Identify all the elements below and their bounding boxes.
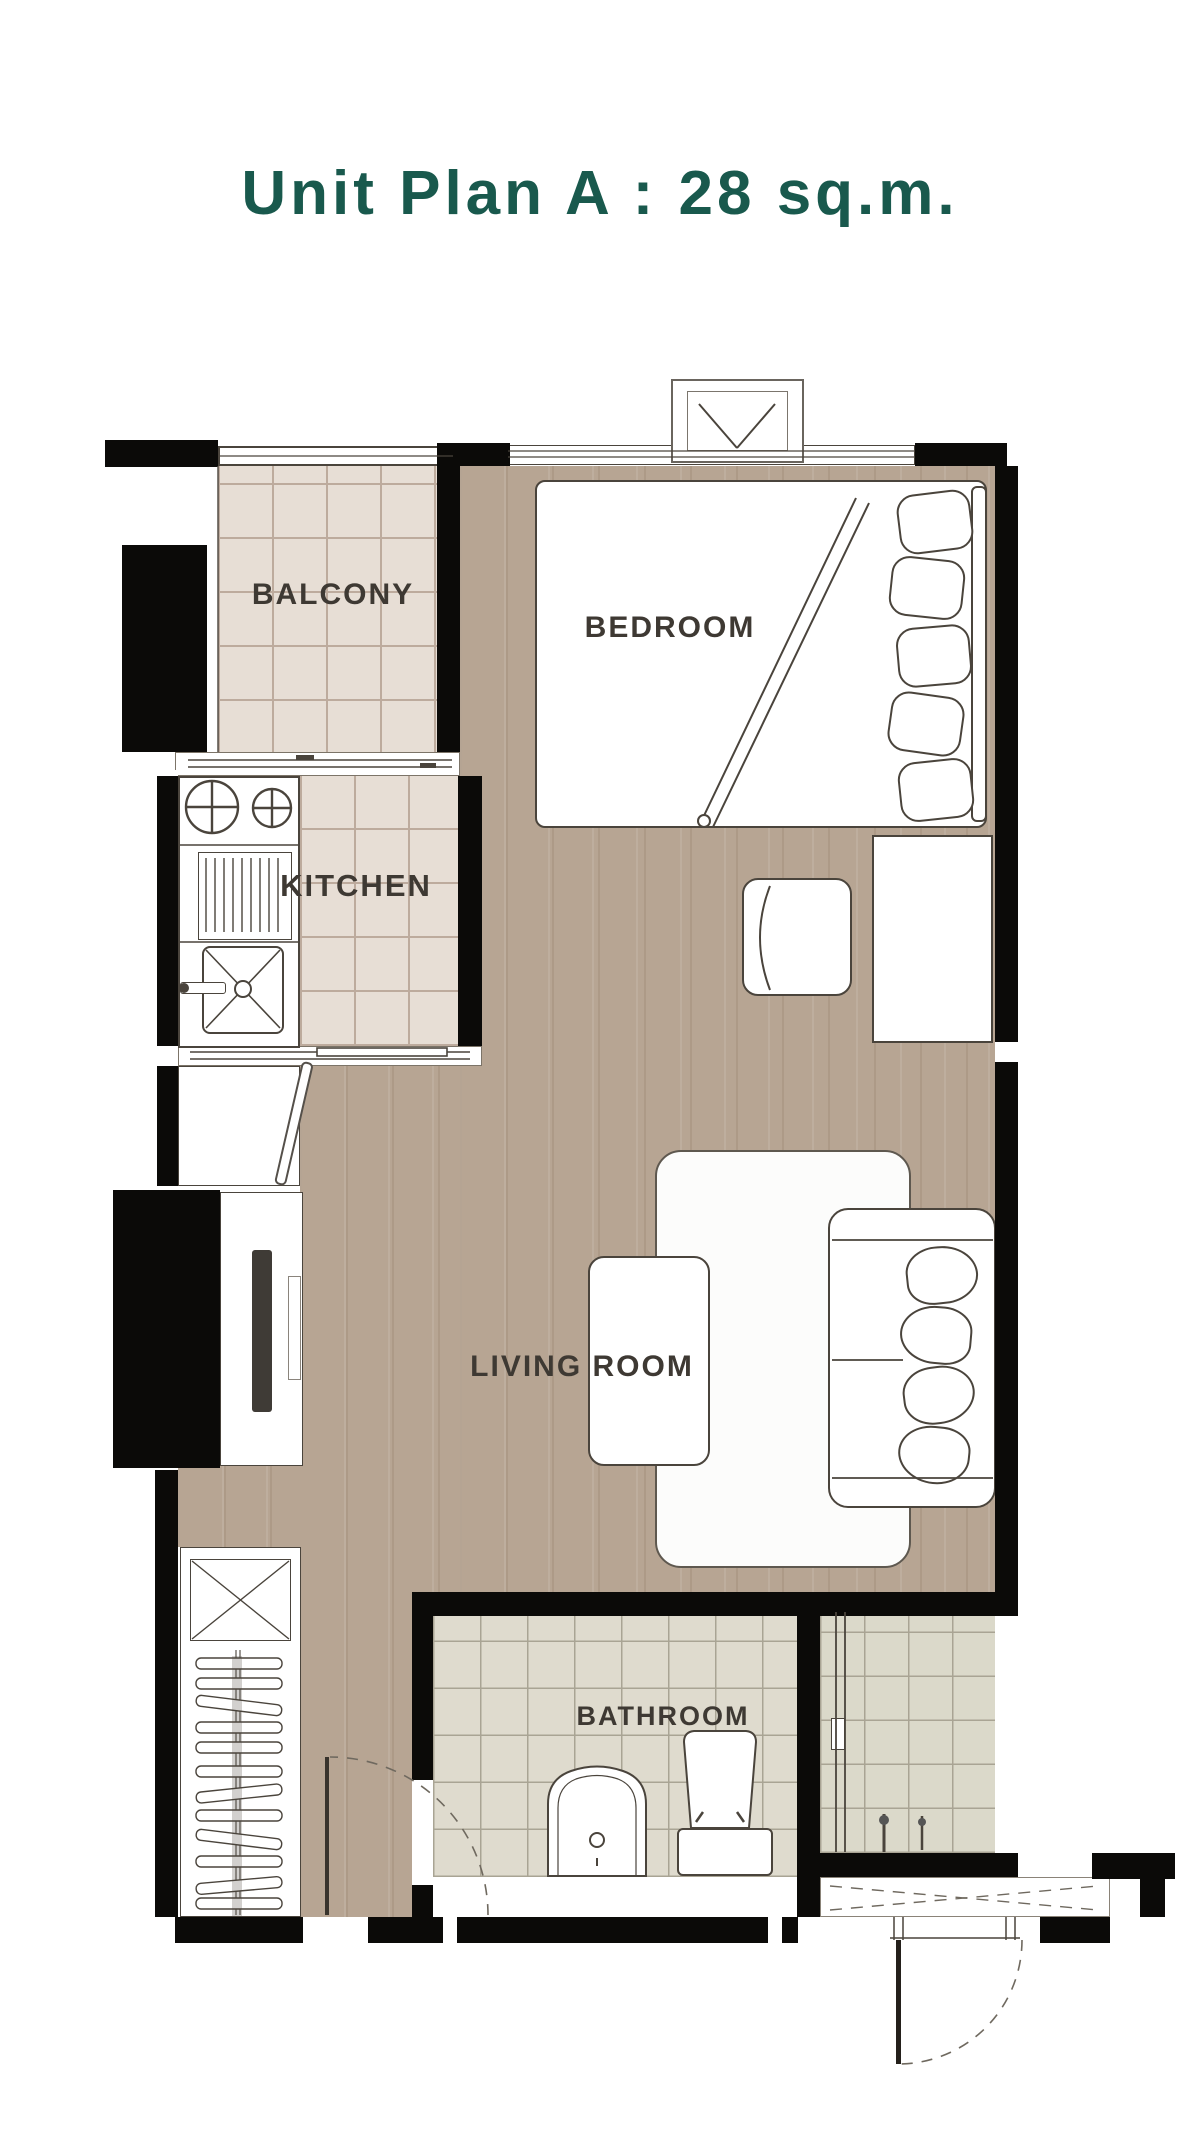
wall-segment bbox=[1040, 1917, 1110, 1943]
entrance-door bbox=[890, 1917, 1022, 2064]
pillow bbox=[885, 689, 967, 759]
wall-segment bbox=[995, 1062, 1018, 1592]
pillow bbox=[887, 554, 967, 621]
wall-segment bbox=[157, 1066, 178, 1186]
wall-column-block bbox=[122, 545, 207, 752]
desk bbox=[872, 835, 993, 1043]
bedroom-label: BEDROOM bbox=[568, 611, 772, 645]
tv bbox=[252, 1250, 272, 1412]
balcony-label: BALCONY bbox=[234, 578, 432, 612]
wall-segment bbox=[412, 1592, 433, 1780]
wall-segment bbox=[458, 776, 482, 1046]
pillow bbox=[895, 488, 976, 557]
wall-segment bbox=[797, 1616, 820, 1877]
wall-segment bbox=[433, 1592, 1018, 1616]
wall-segment bbox=[157, 776, 178, 1046]
chair bbox=[742, 878, 852, 996]
wall-column-block bbox=[113, 1190, 220, 1468]
toilet-tank bbox=[677, 1828, 773, 1876]
entry-door-swing-arc bbox=[901, 1940, 1022, 2064]
wall-notch bbox=[157, 770, 178, 776]
wardrobe-shelf-box bbox=[190, 1559, 291, 1641]
shower-screen-handle bbox=[831, 1718, 845, 1750]
ac-unit-inner bbox=[687, 391, 788, 451]
floor-plan-page: Unit Plan A : 28 sq.m. bbox=[0, 0, 1200, 2142]
kitchen-floor bbox=[300, 776, 458, 1046]
wall-segment bbox=[175, 1917, 303, 1943]
wall-notch bbox=[443, 1917, 457, 1943]
wall-segment bbox=[368, 1917, 798, 1943]
wardrobe-front-wood-floor bbox=[178, 1466, 310, 1547]
wall-segment bbox=[155, 1470, 178, 1917]
kitchen-sliding-door bbox=[178, 1046, 482, 1066]
wall-segment bbox=[995, 466, 1018, 1042]
bed-headboard bbox=[971, 486, 987, 822]
balcony-sliding-door bbox=[175, 752, 460, 776]
sink-faucet bbox=[180, 982, 226, 994]
wall-segment bbox=[820, 1853, 1018, 1877]
living-room-label: LIVING ROOM bbox=[452, 1350, 712, 1384]
wall-segment bbox=[915, 443, 1007, 466]
tv-stand bbox=[288, 1276, 301, 1380]
wall-segment bbox=[797, 1877, 820, 1917]
shower-floor bbox=[820, 1616, 995, 1853]
wall-notch bbox=[995, 1042, 1018, 1062]
wall-segment bbox=[412, 1885, 433, 1917]
pillow bbox=[895, 623, 974, 689]
wall-segment bbox=[105, 440, 218, 467]
hallway-wood-floor bbox=[300, 1066, 460, 1592]
wall-segment bbox=[1092, 1853, 1175, 1879]
page-title: Unit Plan A : 28 sq.m. bbox=[0, 158, 1200, 229]
balcony-railing bbox=[218, 446, 455, 466]
entrance-threshold bbox=[820, 1877, 1110, 1917]
utility-closet bbox=[178, 1066, 300, 1186]
pillow bbox=[896, 756, 976, 823]
wall-segment bbox=[437, 466, 460, 752]
hall-strip-wood-floor bbox=[300, 1592, 412, 1917]
wall-segment bbox=[1140, 1879, 1165, 1917]
bathroom-label: BATHROOM bbox=[548, 1701, 778, 1732]
wall-notch bbox=[768, 1917, 782, 1943]
wall-segment bbox=[437, 443, 510, 466]
kitchen-label: KITCHEN bbox=[262, 868, 450, 904]
